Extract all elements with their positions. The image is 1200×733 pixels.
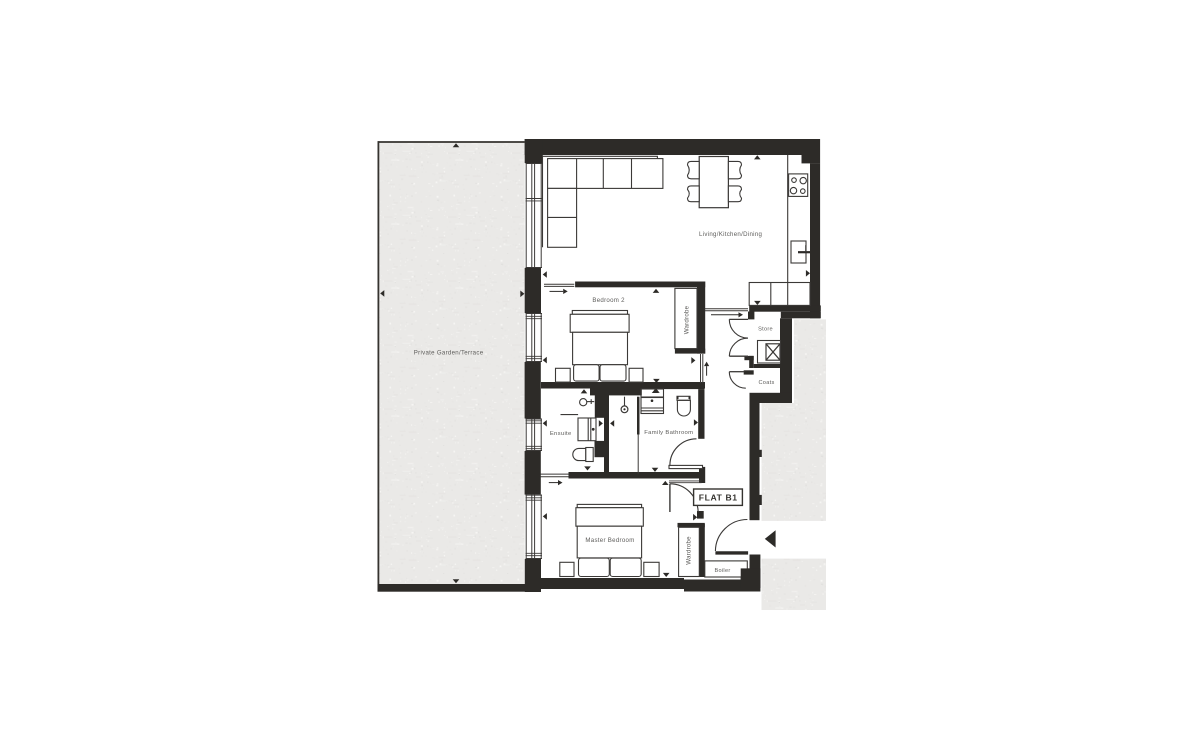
svg-text:Family Bathroom: Family Bathroom [644,430,693,436]
svg-text:Private Garden/Terrace: Private Garden/Terrace [414,350,484,357]
svg-text:Wardrobe: Wardrobe [683,305,690,334]
svg-text:Boiler: Boiler [714,568,730,574]
svg-text:FLAT B1: FLAT B1 [699,493,738,503]
svg-text:Living/Kitchen/Dining: Living/Kitchen/Dining [699,231,762,238]
svg-text:Master Bedroom: Master Bedroom [585,537,634,544]
svg-text:Wardrobe: Wardrobe [686,536,693,565]
svg-text:Bedroom 2: Bedroom 2 [592,297,625,304]
svg-text:Coats: Coats [758,380,774,386]
svg-text:Store: Store [758,327,773,333]
svg-text:Ensuite: Ensuite [550,431,572,437]
